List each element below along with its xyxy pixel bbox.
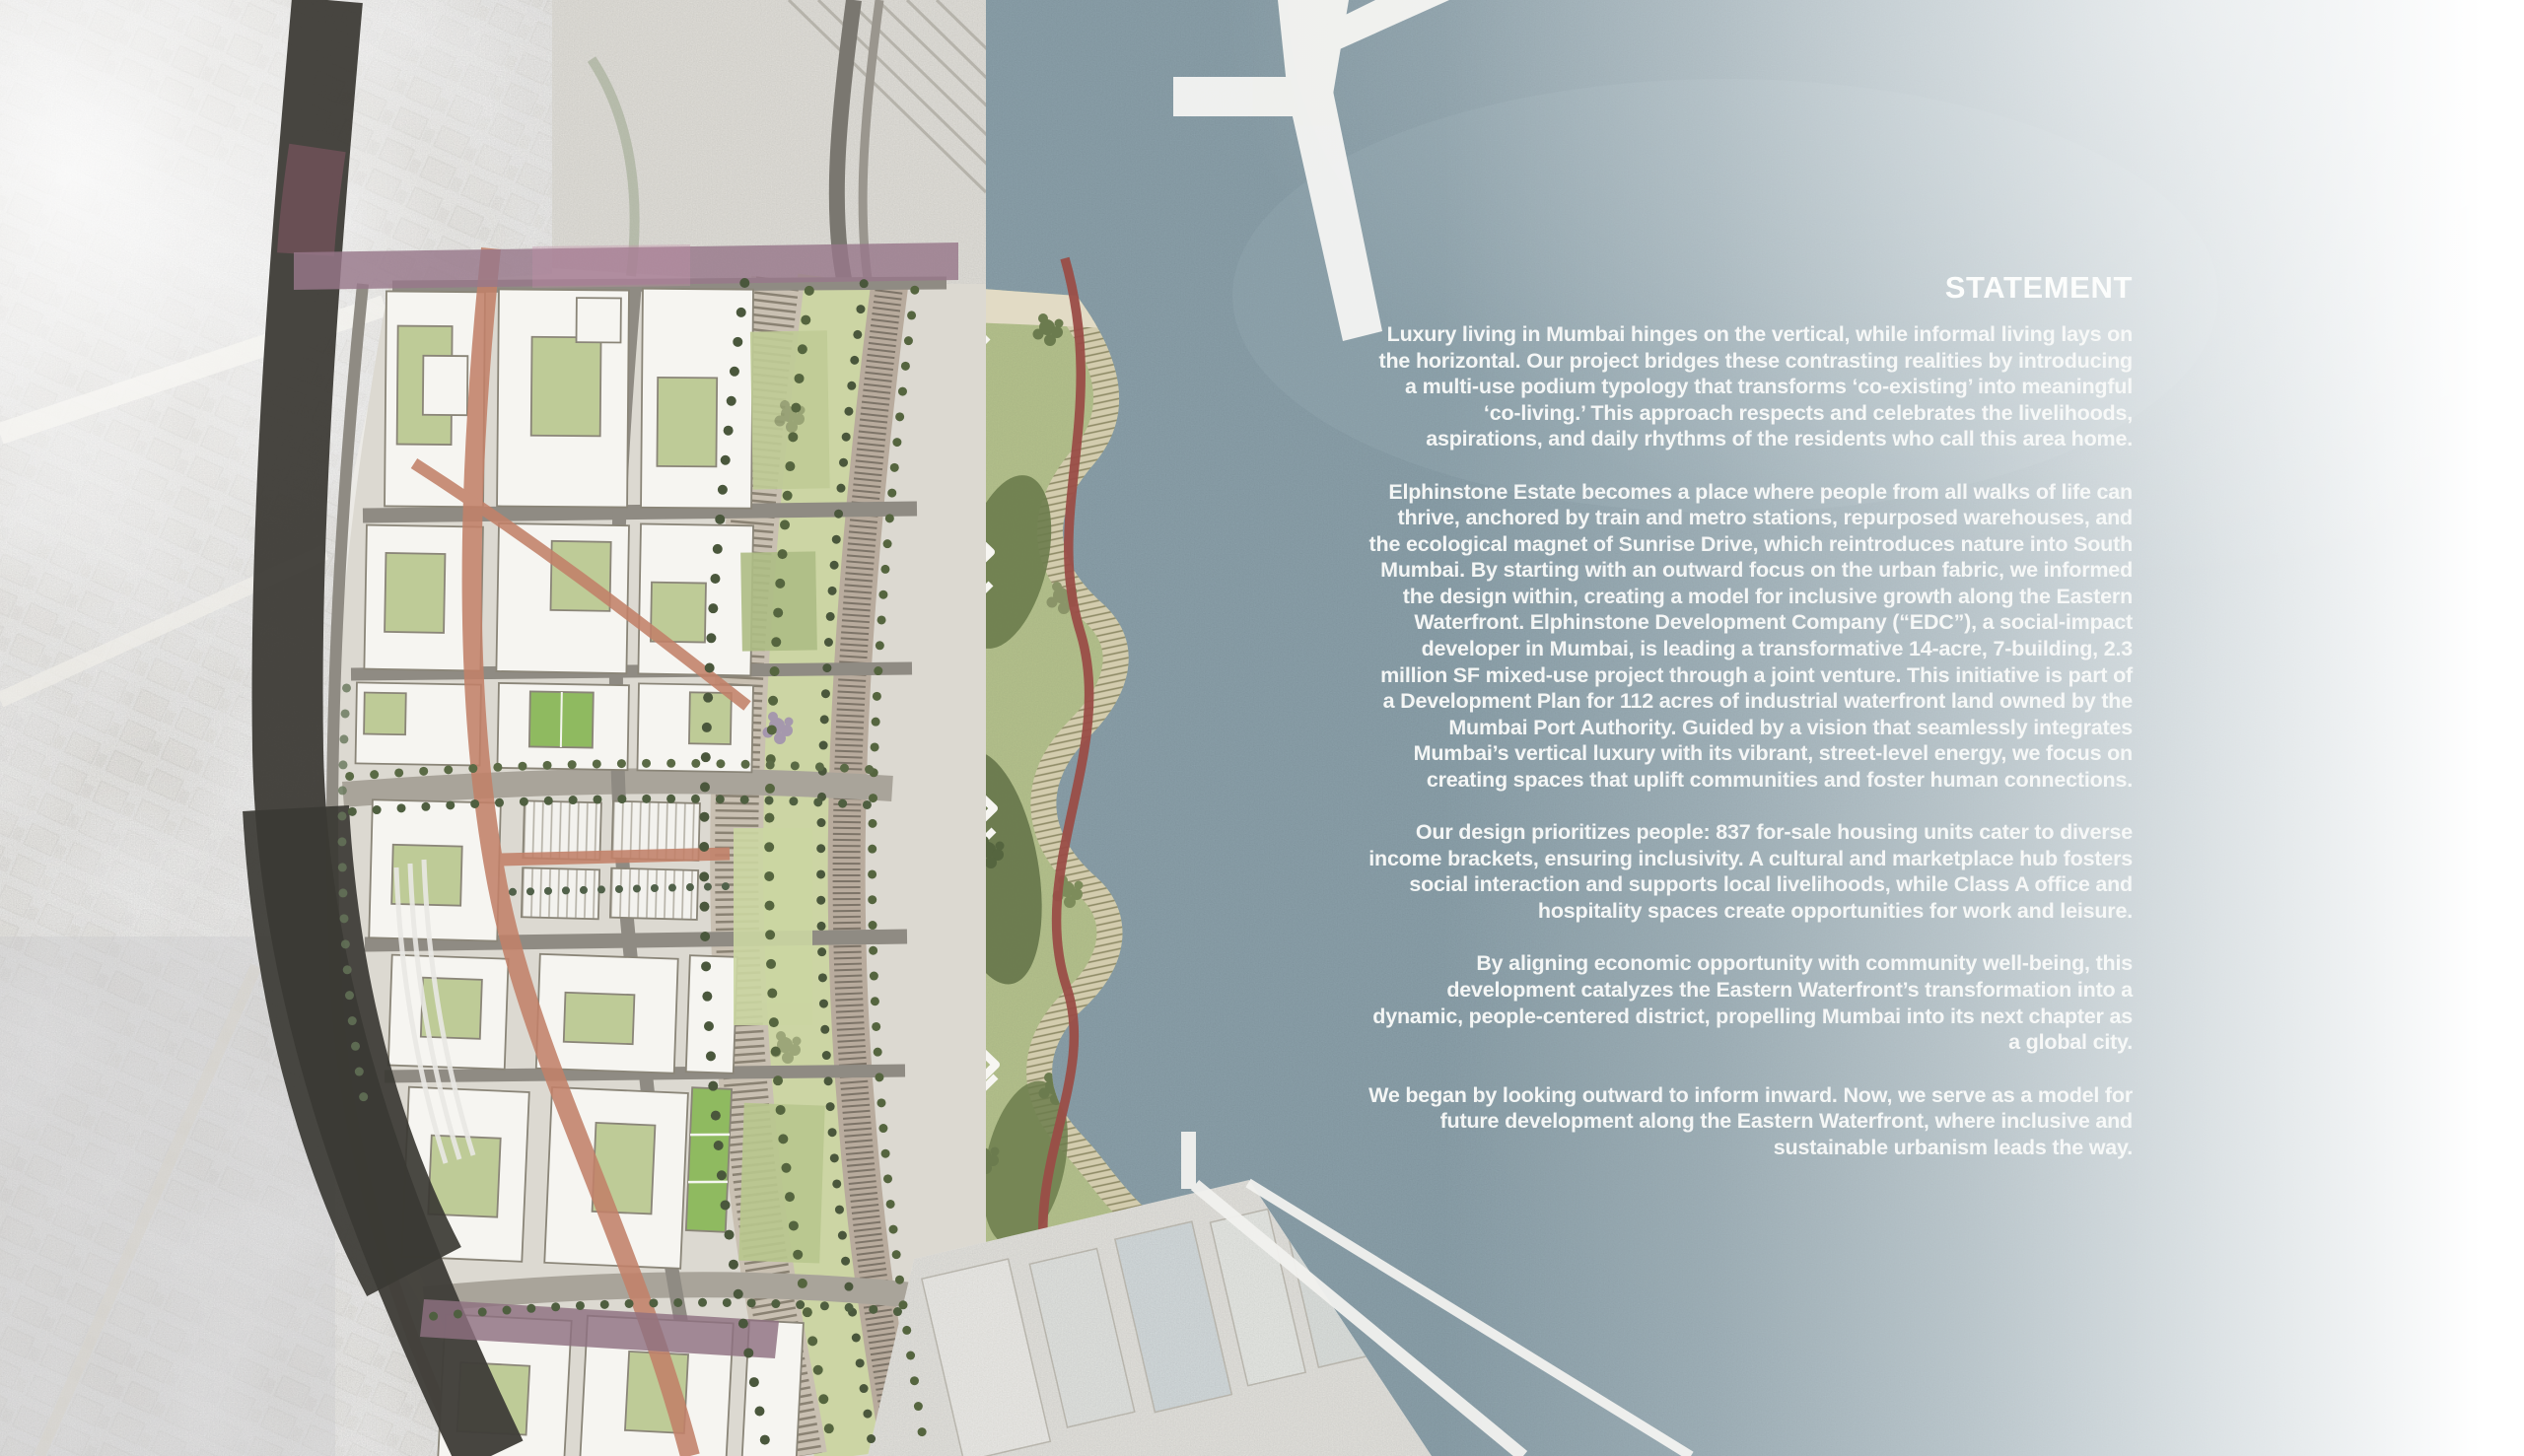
statement-paragraph-3: Our design prioritizes people: 837 for-s… <box>1364 819 2133 924</box>
statement-paragraph-2: Elphinstone Estate becomes a place where… <box>1364 479 2133 794</box>
master-plan-map <box>0 0 2524 1456</box>
statement-paragraph-1: Luxury living in Mumbai hinges on the ve… <box>1364 321 2133 452</box>
statement-block: STATEMENT Luxury living in Mumbai hinges… <box>1364 270 2133 1187</box>
sports-courts <box>686 1087 732 1232</box>
statement-title: STATEMENT <box>1364 270 2133 306</box>
presentation-board: STATEMENT Luxury living in Mumbai hinges… <box>0 0 2524 1456</box>
corridor-maroon-segment <box>306 148 317 254</box>
statement-paragraph-4: By aligning economic opportunity with co… <box>1364 950 2133 1055</box>
statement-paragraph-5: We began by looking outward to inform in… <box>1364 1082 2133 1161</box>
